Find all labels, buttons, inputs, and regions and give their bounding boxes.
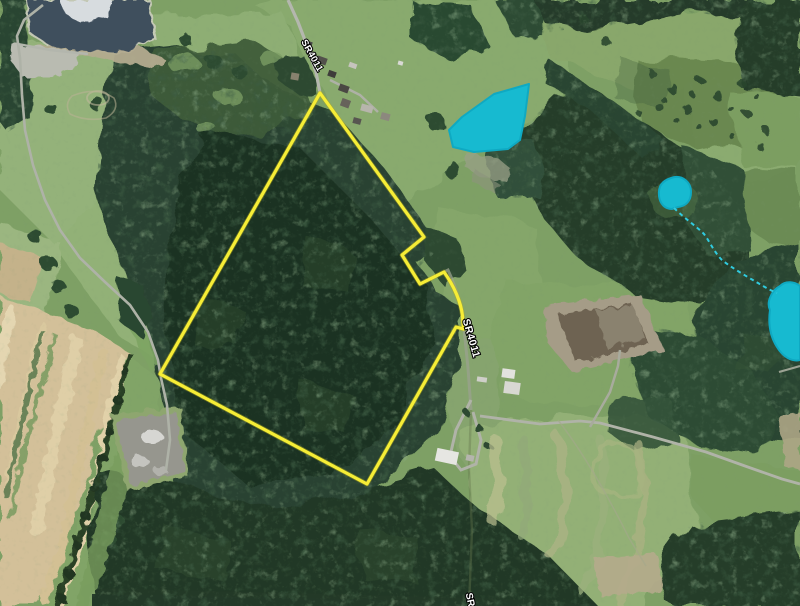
svg-text:SR: SR (463, 592, 477, 606)
